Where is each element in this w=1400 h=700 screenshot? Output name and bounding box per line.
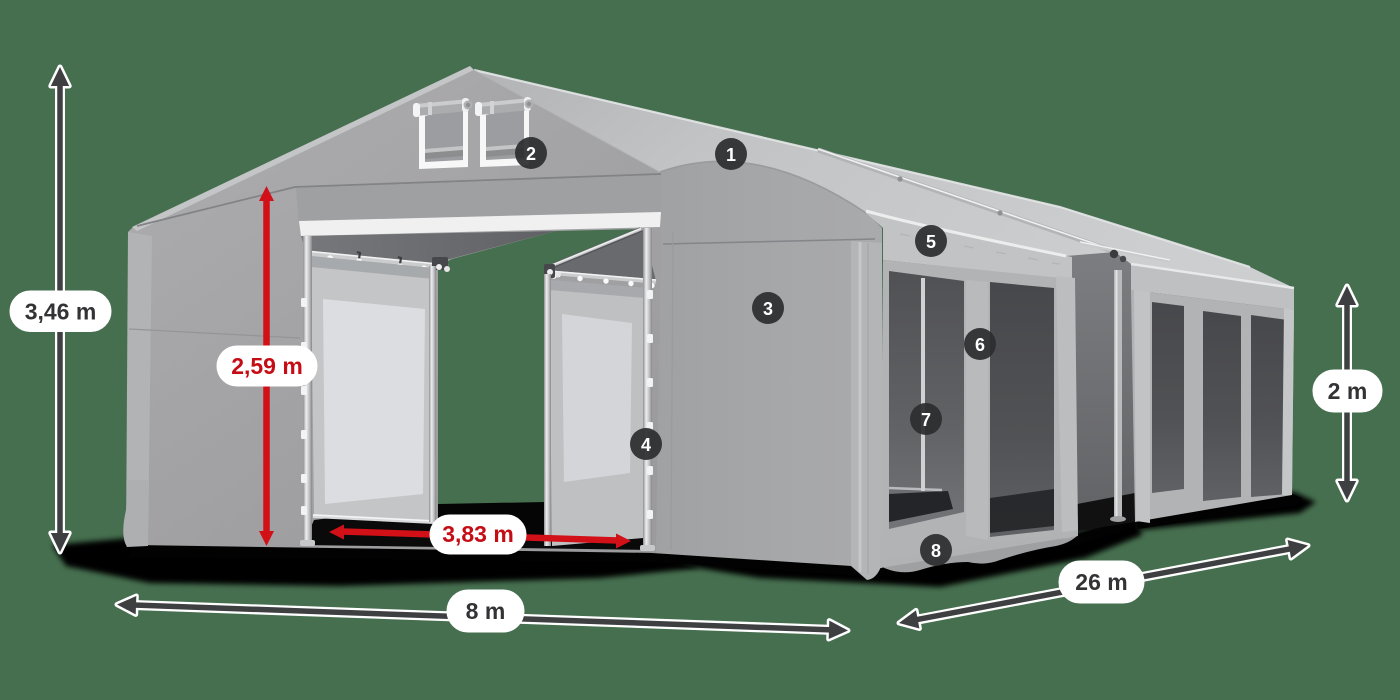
svg-text:5: 5: [926, 232, 936, 252]
svg-text:4: 4: [641, 435, 651, 455]
svg-text:3,46 m: 3,46 m: [25, 299, 97, 325]
svg-text:2 m: 2 m: [1328, 378, 1368, 404]
svg-text:26 m: 26 m: [1075, 569, 1127, 595]
svg-text:1: 1: [726, 145, 736, 165]
svg-text:3: 3: [763, 299, 773, 319]
svg-text:2: 2: [526, 144, 536, 164]
svg-text:8: 8: [931, 541, 941, 561]
svg-text:6: 6: [975, 335, 985, 355]
svg-text:7: 7: [921, 410, 931, 430]
svg-text:8 m: 8 m: [466, 598, 506, 624]
svg-text:2,59 m: 2,59 m: [231, 353, 303, 379]
svg-text:3,83 m: 3,83 m: [442, 521, 514, 547]
